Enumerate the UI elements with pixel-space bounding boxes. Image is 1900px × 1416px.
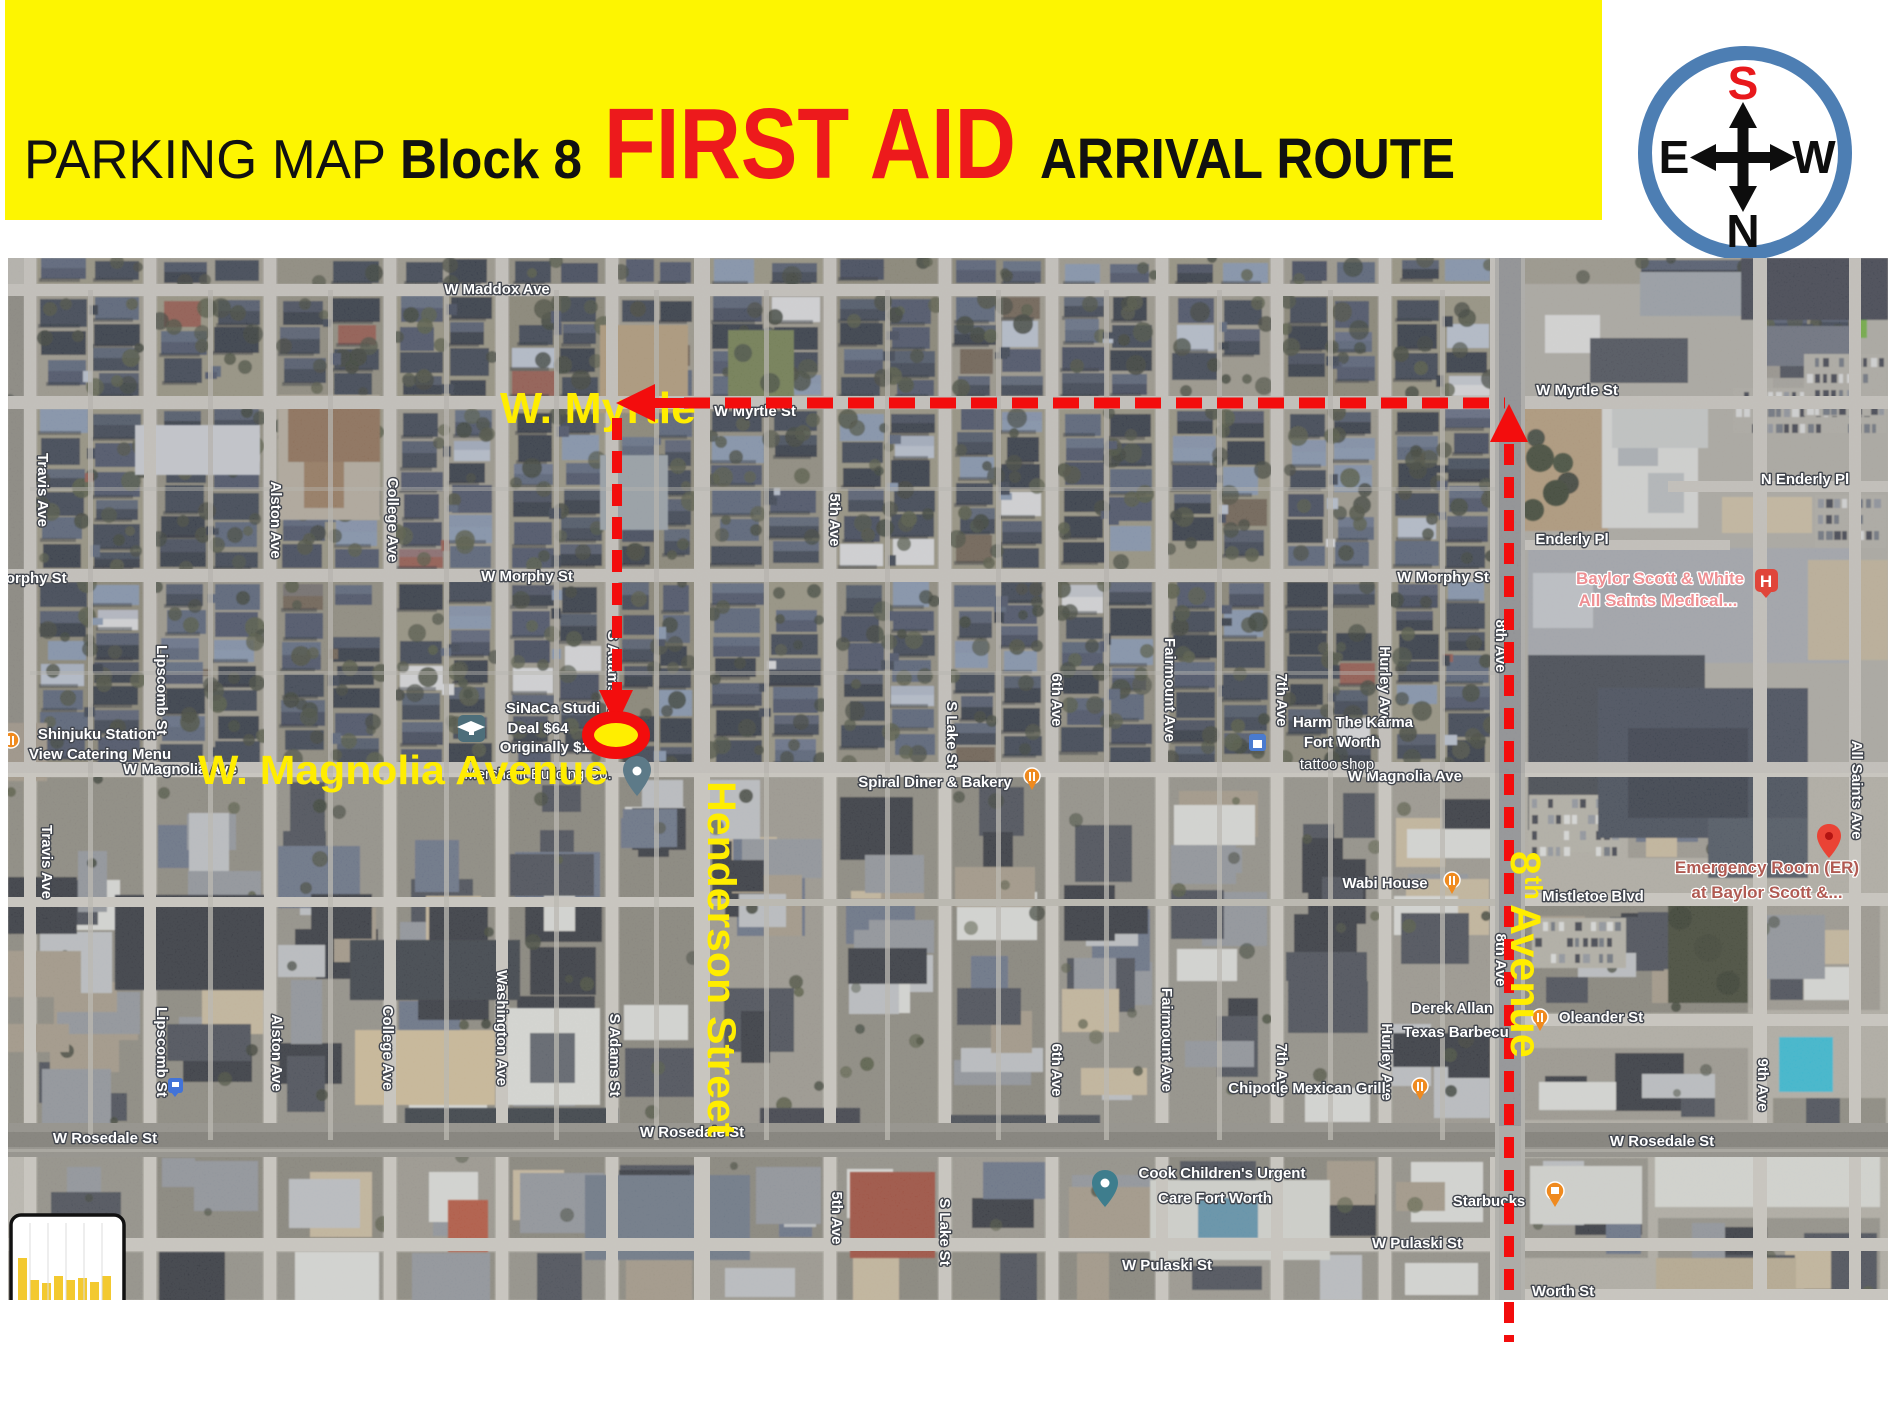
svg-text:S Adams St: S Adams St [606, 1014, 623, 1097]
svg-text:S Lake St: S Lake St [936, 1198, 953, 1266]
svg-text:ARRIVAL ROUTE: ARRIVAL ROUTE [1040, 127, 1455, 191]
svg-text:W Morphy St: W Morphy St [1397, 569, 1489, 586]
svg-text:Shinjuku Station: Shinjuku Station [38, 726, 156, 743]
svg-text:tattoo shop: tattoo shop [1300, 756, 1374, 773]
svg-text:Oleander St: Oleander St [1559, 1009, 1643, 1026]
svg-text:All Saints Ave: All Saints Ave [1848, 741, 1865, 840]
svg-text:Texas Barbecu: Texas Barbecu [1403, 1024, 1509, 1041]
svg-text:7th Ave: 7th Ave [1273, 673, 1290, 726]
svg-text:All Saints Medical...: All Saints Medical... [1579, 591, 1738, 610]
svg-text:PARKING MAP: PARKING MAP [24, 128, 386, 190]
svg-text:SiNaCa Studi: SiNaCa Studi [506, 700, 600, 717]
svg-text:H: H [1760, 572, 1772, 591]
svg-text:Emergency Room (ER): Emergency Room (ER) [1675, 858, 1859, 877]
svg-text:9th Ave: 9th Ave [1754, 1058, 1771, 1111]
svg-text:Alston Ave: Alston Ave [268, 1014, 285, 1091]
svg-text:View Catering Menu: View Catering Menu [29, 746, 171, 763]
svg-text:6th Ave: 6th Ave [1048, 673, 1065, 726]
svg-text:8: 8 [1501, 851, 1549, 875]
svg-text:Baylor Scott & White: Baylor Scott & White [1576, 569, 1744, 588]
svg-text:N: N [1726, 205, 1759, 257]
svg-text:at Baylor Scott &...: at Baylor Scott &... [1691, 883, 1842, 902]
svg-text:Care Fort Worth: Care Fort Worth [1158, 1190, 1272, 1207]
svg-text:Starbucks: Starbucks [1453, 1193, 1526, 1210]
svg-text:Hurley Ave: Hurley Ave [1376, 646, 1393, 723]
svg-text:Fairmount Ave: Fairmount Ave [1161, 638, 1178, 742]
svg-text:W. Magnolia Avenue: W. Magnolia Avenue [198, 747, 608, 793]
svg-text:W Myrtle St: W Myrtle St [1536, 382, 1618, 399]
svg-text:th: th [1519, 876, 1547, 900]
svg-text:Derek Allan: Derek Allan [1411, 1000, 1493, 1017]
svg-text:Cook Children's Urgent: Cook Children's Urgent [1139, 1165, 1306, 1182]
svg-text:Fairmount Ave: Fairmount Ave [1158, 988, 1175, 1092]
svg-text:Wabi House: Wabi House [1342, 875, 1427, 892]
svg-text:6th Ave: 6th Ave [1048, 1043, 1065, 1096]
svg-text:S Lake St: S Lake St [943, 701, 960, 769]
svg-text:Travis Ave: Travis Ave [34, 453, 51, 527]
svg-text:Block 8: Block 8 [400, 128, 582, 190]
svg-text:Worth St: Worth St [1532, 1283, 1594, 1300]
svg-text:S: S [1728, 57, 1759, 109]
svg-text:W Pulaski St: W Pulaski St [1372, 1235, 1462, 1252]
svg-text:W: W [1792, 131, 1836, 183]
svg-text:N Enderly Pl: N Enderly Pl [1761, 471, 1849, 488]
svg-text:E: E [1659, 131, 1690, 183]
svg-text:W Rosedale St: W Rosedale St [53, 1130, 157, 1147]
svg-text:W Morphy St: W Morphy St [481, 568, 573, 585]
svg-text:W. Myrtle: W. Myrtle [500, 384, 696, 433]
svg-text:Chipotle Mexican Grill: Chipotle Mexican Grill [1228, 1080, 1386, 1097]
svg-text:College Ave: College Ave [384, 478, 401, 563]
svg-text:5th Ave: 5th Ave [826, 493, 843, 546]
svg-text:W Rosedale St: W Rosedale St [1610, 1133, 1714, 1150]
svg-text:Spiral Diner & Bakery: Spiral Diner & Bakery [858, 774, 1012, 791]
svg-text:5th Ave: 5th Ave [828, 1191, 845, 1244]
svg-text:W Pulaski St: W Pulaski St [1122, 1257, 1212, 1274]
svg-text:Enderly Pl: Enderly Pl [1535, 531, 1608, 548]
svg-text:College Ave: College Ave [379, 1006, 396, 1091]
svg-text:Fort Worth: Fort Worth [1304, 734, 1380, 751]
svg-text:W Maddox Ave: W Maddox Ave [444, 281, 550, 298]
svg-text:Avenue: Avenue [1501, 904, 1549, 1058]
svg-text:Henderson Street: Henderson Street [699, 781, 743, 1137]
svg-text:Morphy St: Morphy St [8, 570, 67, 587]
svg-text:Lipscomb St: Lipscomb St [153, 645, 170, 735]
svg-text:Mistletoe Blvd: Mistletoe Blvd [1542, 888, 1644, 905]
svg-text:Washington Ave: Washington Ave [493, 970, 510, 1086]
svg-text:Travis Ave: Travis Ave [38, 825, 55, 899]
svg-text:FIRST AID: FIRST AID [604, 88, 1016, 200]
svg-text:Lipscomb St: Lipscomb St [153, 1007, 170, 1097]
svg-text:Alston Ave: Alston Ave [267, 481, 284, 558]
svg-text:Harm The Karma: Harm The Karma [1293, 714, 1414, 731]
svg-text:Deal $64: Deal $64 [508, 720, 570, 737]
